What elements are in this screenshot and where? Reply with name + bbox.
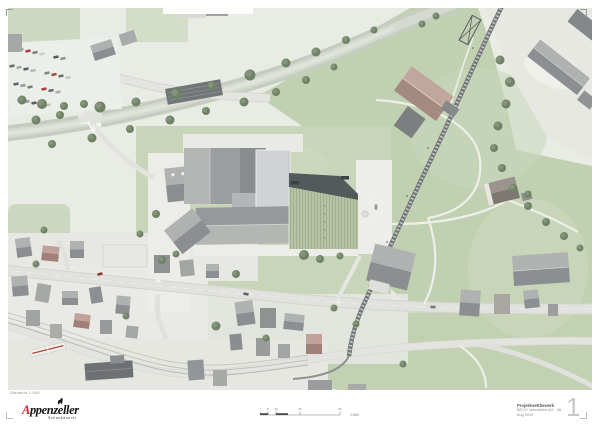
scale-tick-label: 0 <box>260 407 261 411</box>
project-subtitle: BECO Immobilien AG · 26. Aug 2010 <box>517 408 567 417</box>
plan-sheet: Situation 1:500 Appenzeller Schaukäserei… <box>0 0 600 429</box>
brand-subline: Schaukäserei <box>48 416 76 420</box>
site-plan-aerial-photo <box>8 8 592 390</box>
crop-mark-top-right <box>580 9 587 16</box>
new-building-white <box>256 150 290 209</box>
aerial-photo-area <box>8 8 592 390</box>
long-south-hall <box>196 206 294 245</box>
scale-label: 1:500 <box>350 413 359 417</box>
brand-initial: A <box>22 403 30 417</box>
project-info-block: Projektwettbewerb BECO Immobilien AG · 2… <box>517 403 567 418</box>
photo-edge-cut <box>163 8 253 14</box>
sheet-caption: Situation 1:500 <box>10 390 40 395</box>
scale-tick-label: 10 <box>274 407 278 411</box>
scale-bar: 0 5 10 25 50 1:500 <box>260 406 364 420</box>
project-building <box>289 173 358 249</box>
crop-mark-bottom-left <box>6 412 13 419</box>
brand-rest: ppenzeller <box>30 403 79 417</box>
brand-logo: Appenzeller Schaukäserei <box>22 397 94 423</box>
crop-mark-bottom-right <box>580 412 587 419</box>
scale-tick-label: 25 <box>298 407 302 411</box>
crop-mark-top-left <box>6 9 13 16</box>
page-number: 1 <box>566 394 580 420</box>
scale-bar-graphic: 0 5 10 25 50 1:500 <box>260 406 364 420</box>
silo <box>362 211 368 217</box>
scale-tick-label: 5 <box>267 407 269 411</box>
scale-tick-label: 50 <box>338 407 342 411</box>
